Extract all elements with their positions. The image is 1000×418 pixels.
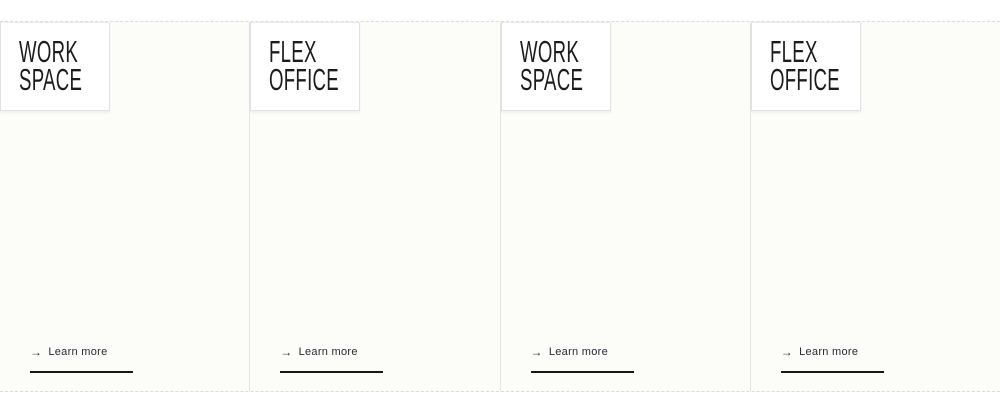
- card-title: WORK SPACE: [520, 38, 610, 94]
- learn-more-label: Learn more: [48, 346, 107, 359]
- learn-more-row: → Learn more: [30, 346, 133, 359]
- cards-section: WORK SPACE → Learn more FLEX OFFICE: [0, 21, 1000, 392]
- learn-more-underline: [30, 371, 133, 373]
- learn-more-label: Learn more: [299, 346, 358, 359]
- card-title-box: WORK SPACE: [501, 22, 611, 111]
- learn-more-link[interactable]: → Learn more: [30, 346, 133, 373]
- card-title-line-2: OFFICE: [770, 66, 824, 94]
- arrow-right-icon: →: [280, 346, 292, 359]
- card-flexoffice-1: FLEX OFFICE → Learn more: [249, 22, 499, 391]
- learn-more-label: Learn more: [549, 346, 608, 359]
- learn-more-row: → Learn more: [781, 346, 884, 359]
- learn-more-link[interactable]: → Learn more: [280, 346, 383, 373]
- learn-more-label: Learn more: [799, 346, 858, 359]
- learn-more-row: → Learn more: [280, 346, 383, 359]
- card-title: WORK SPACE: [19, 38, 109, 94]
- arrow-right-icon: →: [30, 346, 42, 359]
- learn-more-underline: [781, 371, 884, 373]
- learn-more-link[interactable]: → Learn more: [781, 346, 884, 373]
- arrow-right-icon: →: [531, 346, 543, 359]
- card-title-box: WORK SPACE: [0, 22, 110, 111]
- card-title-line-2: SPACE: [19, 66, 73, 94]
- card-workspace-1: WORK SPACE → Learn more: [0, 22, 249, 391]
- card-workspace-2: WORK SPACE → Learn more: [500, 22, 750, 391]
- card-title-line-2: SPACE: [520, 66, 574, 94]
- page: WORK SPACE → Learn more FLEX OFFICE: [0, 0, 1000, 418]
- learn-more-row: → Learn more: [531, 346, 634, 359]
- card-title-box: FLEX OFFICE: [751, 22, 861, 111]
- learn-more-underline: [280, 371, 383, 373]
- card-title: FLEX OFFICE: [269, 38, 359, 94]
- card-title: FLEX OFFICE: [770, 38, 860, 94]
- card-flexoffice-2: FLEX OFFICE → Learn more: [750, 22, 1000, 391]
- learn-more-link[interactable]: → Learn more: [531, 346, 634, 373]
- card-title-line-2: OFFICE: [269, 66, 323, 94]
- learn-more-underline: [531, 371, 634, 373]
- card-title-box: FLEX OFFICE: [250, 22, 360, 111]
- arrow-right-icon: →: [781, 346, 793, 359]
